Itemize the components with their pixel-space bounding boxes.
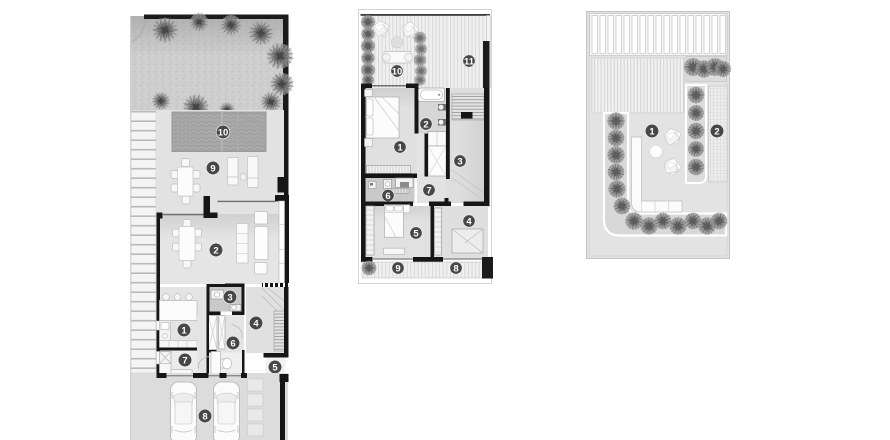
svg-text:4: 4 (253, 318, 259, 329)
svg-text:1: 1 (649, 126, 655, 137)
svg-text:6: 6 (385, 191, 390, 202)
svg-text:1: 1 (181, 325, 187, 336)
svg-text:3: 3 (457, 156, 462, 167)
svg-text:5: 5 (413, 228, 419, 239)
svg-text:11: 11 (464, 56, 475, 67)
svg-text:8: 8 (453, 263, 458, 274)
svg-text:7: 7 (426, 185, 431, 196)
svg-text:5: 5 (272, 362, 278, 373)
svg-text:8: 8 (202, 411, 207, 422)
svg-text:10: 10 (392, 66, 403, 77)
svg-text:7: 7 (182, 355, 187, 366)
svg-text:2: 2 (423, 119, 428, 130)
svg-text:9: 9 (395, 263, 400, 274)
svg-text:1: 1 (397, 142, 403, 153)
svg-text:4: 4 (466, 216, 472, 227)
svg-text:2: 2 (714, 126, 719, 137)
svg-text:9: 9 (210, 163, 215, 174)
svg-text:2: 2 (213, 245, 218, 256)
svg-text:6: 6 (230, 338, 235, 349)
svg-text:10: 10 (218, 127, 229, 138)
svg-text:3: 3 (227, 292, 232, 303)
